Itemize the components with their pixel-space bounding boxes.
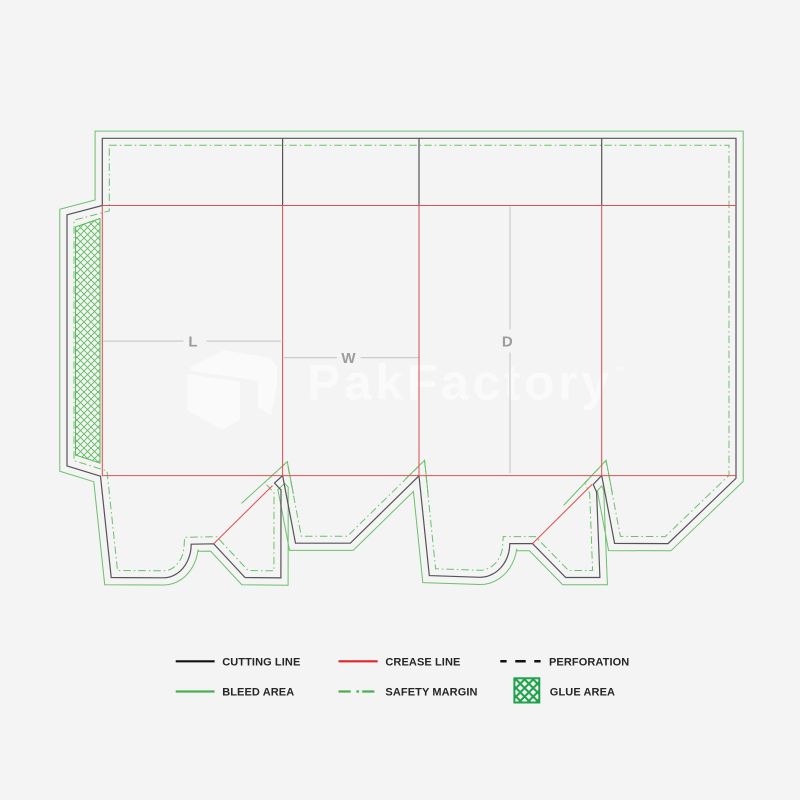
svg-text:™: ™ [614,364,626,378]
svg-text:W: W [341,350,356,367]
svg-text:CREASE LINE: CREASE LINE [385,656,460,668]
svg-text:BLEED AREA: BLEED AREA [222,687,294,699]
svg-text:L: L [188,333,197,350]
svg-text:SAFETY MARGIN: SAFETY MARGIN [385,687,477,699]
svg-text:CUTTING LINE: CUTTING LINE [222,656,300,668]
svg-text:PERFORATION: PERFORATION [549,656,629,668]
svg-text:D: D [502,333,513,350]
svg-text:GLUE AREA: GLUE AREA [550,687,615,699]
